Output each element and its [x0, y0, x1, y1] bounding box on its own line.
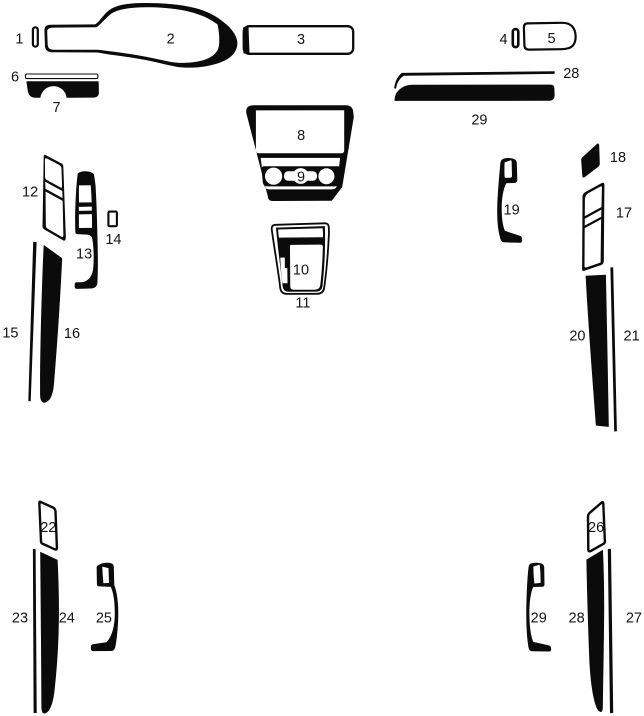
svg-text:11: 11: [295, 295, 310, 311]
svg-text:28: 28: [569, 610, 585, 626]
svg-text:12: 12: [22, 184, 38, 200]
svg-text:6: 6: [11, 70, 19, 86]
svg-text:8: 8: [297, 128, 305, 144]
svg-text:27: 27: [626, 610, 642, 626]
svg-text:28: 28: [563, 66, 579, 82]
svg-text:14: 14: [105, 232, 121, 248]
svg-text:21: 21: [624, 329, 640, 345]
svg-text:13: 13: [76, 247, 92, 263]
svg-text:25: 25: [96, 610, 112, 626]
svg-text:7: 7: [52, 100, 60, 116]
svg-text:9: 9: [297, 170, 305, 186]
svg-text:5: 5: [547, 31, 555, 47]
svg-text:26: 26: [588, 520, 604, 536]
svg-text:29: 29: [471, 112, 487, 128]
svg-text:3: 3: [297, 32, 305, 48]
svg-text:29: 29: [531, 610, 547, 626]
svg-text:1: 1: [15, 32, 23, 48]
svg-text:18: 18: [610, 150, 626, 166]
svg-text:23: 23: [12, 610, 28, 626]
svg-text:16: 16: [64, 326, 80, 342]
svg-text:20: 20: [569, 329, 585, 345]
svg-text:4: 4: [499, 32, 507, 48]
svg-text:10: 10: [293, 263, 309, 279]
svg-text:24: 24: [59, 610, 75, 626]
svg-text:19: 19: [504, 202, 520, 218]
svg-text:2: 2: [167, 32, 175, 48]
svg-text:22: 22: [40, 520, 56, 536]
svg-text:15: 15: [2, 326, 18, 342]
svg-text:17: 17: [616, 206, 632, 222]
